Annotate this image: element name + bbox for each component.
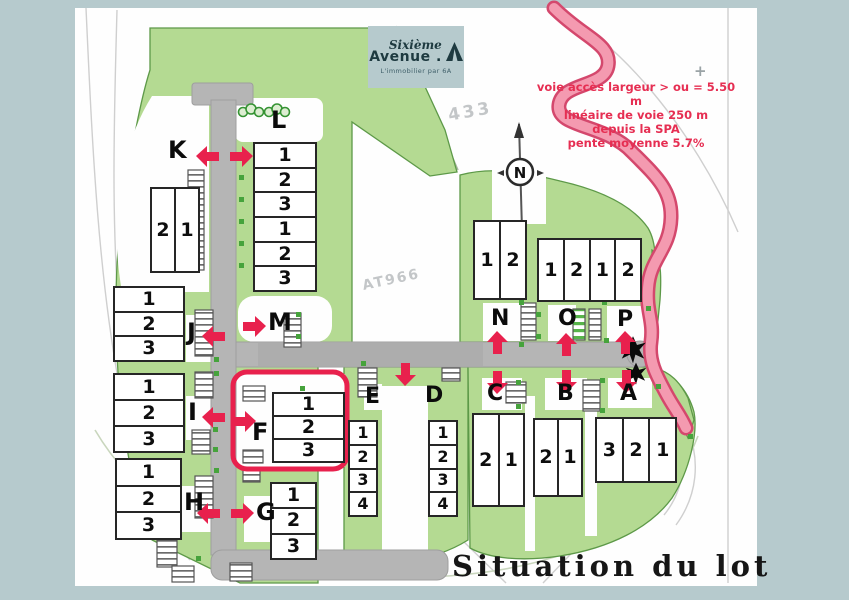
unit-cell: 1: [430, 422, 456, 444]
sixieme-avenue-logo: Sixième Avenue . L'immobilier par 6A: [368, 26, 464, 88]
units-box-o-p: 1212: [537, 238, 642, 302]
unit-cell: 2: [430, 444, 456, 468]
lot-label-e: E: [365, 386, 380, 408]
units-box-n: 12: [473, 220, 527, 300]
unit-cell: 1: [539, 240, 563, 300]
unit-cell: 2: [152, 189, 174, 271]
lot-label-a: A: [620, 383, 637, 405]
unit-cell: 1: [115, 375, 183, 399]
units-box-f: 123: [272, 392, 345, 463]
unit-cell: 2: [535, 420, 557, 495]
unit-cell: 2: [117, 485, 180, 512]
unit-cell: 2: [255, 241, 315, 266]
units-box-g: 123: [270, 482, 317, 560]
unit-cell: 4: [430, 491, 456, 515]
unit-cell: 2: [499, 222, 525, 298]
unit-cell: 2: [350, 444, 376, 468]
access-road-note: voie accès largeur > ou = 5.50 m linéair…: [531, 80, 741, 150]
unit-cell: 3: [117, 511, 180, 538]
lot-label-c: C: [487, 383, 503, 405]
logo-tagline: L'immobilier par 6A: [380, 67, 451, 75]
unit-cell: 1: [350, 422, 376, 444]
unit-cell: 1: [274, 394, 343, 415]
lot-label-j: J: [187, 320, 196, 344]
units-box-d: 1234: [428, 420, 458, 517]
unit-cell: 3: [597, 419, 622, 481]
lot-label-f: F: [252, 420, 268, 444]
unit-cell: 1: [557, 420, 581, 495]
lot-label-o: O: [558, 308, 577, 330]
lot-label-k: K: [168, 138, 187, 162]
access-note-line: pente moyenne 5.7%: [531, 136, 741, 150]
lot-label-i: I: [188, 400, 197, 424]
unit-cell: 2: [474, 415, 498, 505]
units-box-e: 1234: [348, 420, 378, 517]
unit-cell: 2: [563, 240, 589, 300]
unit-cell: 3: [255, 265, 315, 290]
unit-cell: 2: [255, 167, 315, 192]
unit-cell: 1: [589, 240, 615, 300]
unit-cell: 1: [272, 484, 315, 507]
site-plan-image: N 21 123123 123 123 123 123 123 1234 123…: [0, 0, 849, 600]
unit-cell: 4: [350, 491, 376, 515]
unit-cell: 1: [255, 144, 315, 167]
unit-cell: 1: [174, 189, 198, 271]
unit-cell: 1: [117, 460, 180, 485]
units-box-b: 21: [533, 418, 583, 497]
lot-label-d: D: [425, 385, 443, 407]
units-box-j: 123: [113, 286, 185, 362]
unit-cell: 1: [475, 222, 499, 298]
unit-cell: 1: [115, 288, 183, 311]
unit-cell: 3: [115, 335, 183, 360]
unit-cell: 2: [115, 311, 183, 336]
lot-label-g: G: [256, 500, 276, 524]
units-box-k: 21: [150, 187, 200, 273]
unit-cell: 2: [622, 419, 649, 481]
unit-cell: 1: [498, 415, 524, 505]
map-title: Situation du lot: [452, 549, 752, 583]
lot-label-h: H: [184, 490, 204, 514]
unit-cell: 2: [274, 415, 343, 438]
access-note-line: linéaire de voie 250 m: [531, 108, 741, 122]
unit-cell: 3: [274, 438, 343, 461]
unit-cell: 3: [255, 191, 315, 216]
svg-text:N: N: [514, 164, 527, 182]
road-vertical: [211, 100, 236, 555]
lot-label-n: N: [491, 308, 509, 330]
unit-cell: 2: [614, 240, 640, 300]
access-note-line: voie accès largeur > ou = 5.50 m: [531, 80, 741, 108]
logo-brand-bottom: Avenue .: [369, 51, 442, 64]
lot-label-p: P: [617, 309, 633, 331]
survey-cross-mark: +: [694, 62, 707, 80]
units-box-h: 123: [115, 458, 182, 540]
unit-cell: 3: [430, 468, 456, 492]
lot-label-b: B: [557, 383, 574, 405]
units-box-a: 321: [595, 417, 677, 483]
unit-cell: 2: [272, 507, 315, 532]
unit-cell: 1: [648, 419, 675, 481]
unit-cell: 3: [115, 425, 183, 451]
lot-label-l: L: [271, 108, 286, 132]
units-box-i: 123: [113, 373, 185, 453]
units-box-c: 21: [472, 413, 525, 507]
logo-a-mark-icon: [446, 42, 463, 61]
access-note-line: depuis la SPA: [531, 122, 741, 136]
unit-cell: 1: [255, 216, 315, 241]
unit-cell: 2: [115, 399, 183, 425]
lot-label-m: M: [268, 310, 292, 334]
unit-cell: 3: [350, 468, 376, 492]
units-box-l: 123123: [253, 142, 317, 292]
unit-cell: 3: [272, 533, 315, 558]
